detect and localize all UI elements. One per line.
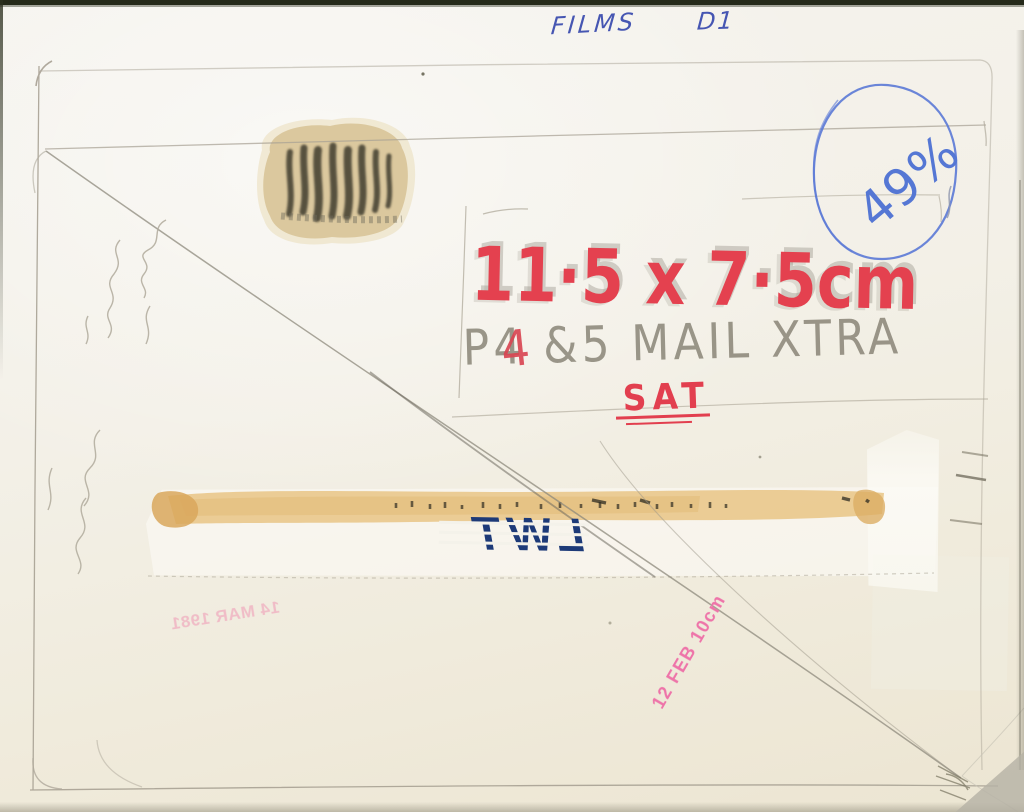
paper-left-edge bbox=[0, 0, 3, 380]
pencil-scribbles-left bbox=[48, 220, 166, 574]
obliterated-stamp bbox=[257, 118, 415, 245]
page-code-ink-label: D1 bbox=[696, 6, 736, 35]
pencil-crop-frame bbox=[30, 60, 998, 790]
pencil-markup-layer bbox=[0, 0, 1024, 812]
lwt-logo-mirrored: LWT bbox=[435, 505, 586, 562]
photo-print-back: FILMS D1 49% 11·5 x 7·5cm P4 &5 MAIL XTR… bbox=[0, 0, 1024, 812]
paper-right-edge-line bbox=[1019, 180, 1021, 770]
paper-bottom-edge bbox=[0, 802, 1024, 812]
paper-top-edge-shadow bbox=[0, 5, 1024, 7]
films-ink-label: FILMS bbox=[550, 8, 638, 41]
red-overstrike-digit: 4 bbox=[498, 318, 533, 379]
day-note: SAT bbox=[622, 374, 711, 419]
